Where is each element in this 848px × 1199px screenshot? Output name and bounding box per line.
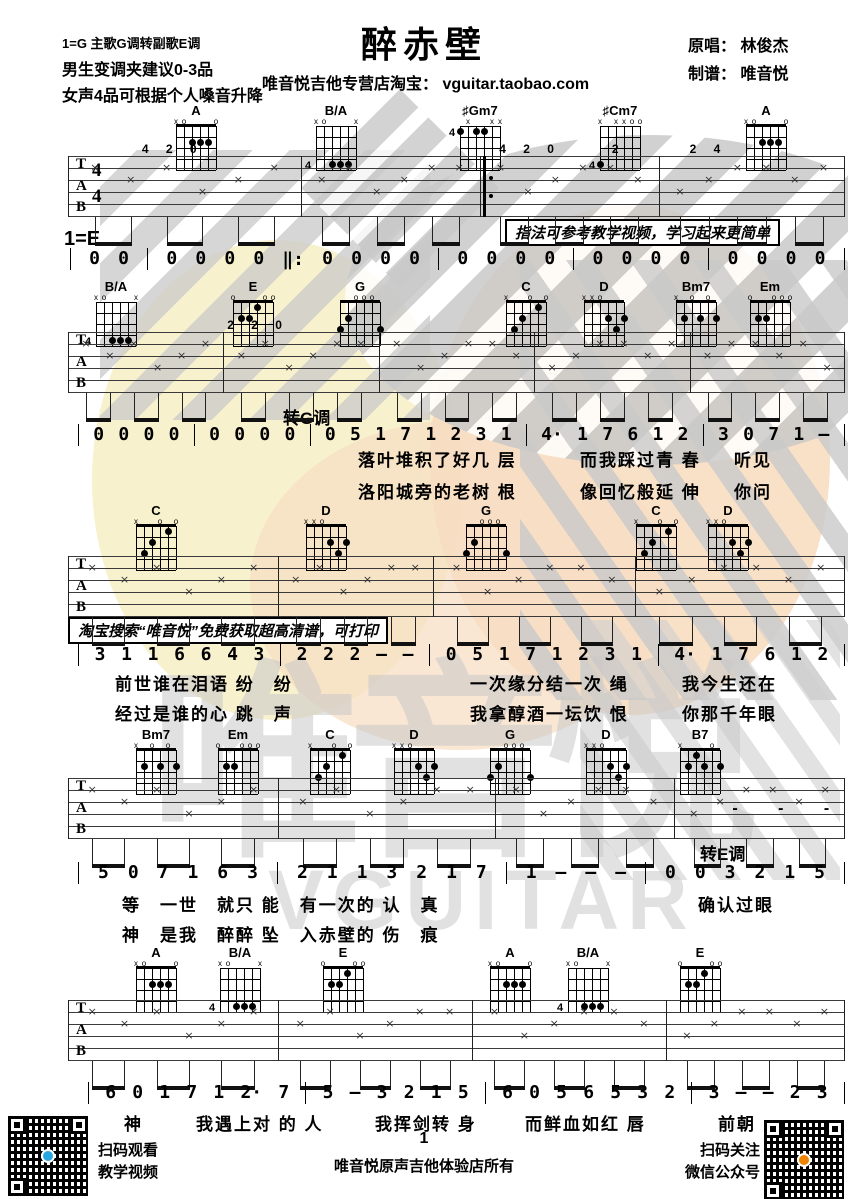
strum-x-mark: × (90, 161, 99, 174)
jianpu-note: 1 (446, 862, 457, 884)
chord-fret-line (136, 772, 176, 773)
jianpu-note: 6 (627, 424, 638, 446)
staff-line (68, 802, 845, 803)
jianpu-row-1: 000000‖:0000000000000000 (70, 248, 845, 270)
staff-letter-T: T (76, 1000, 86, 1017)
jianpu-note: 1 (652, 424, 663, 446)
bar-line (480, 156, 481, 217)
jianpu-note: 1 (357, 862, 368, 884)
jianpu-note: 0 (515, 248, 526, 270)
chord-fret-line (568, 968, 608, 969)
note-stem (349, 217, 350, 244)
strum-x-mark: × (464, 337, 473, 350)
strum-x-mark: × (819, 161, 828, 174)
note-stem (492, 393, 493, 420)
string-marker-o: o (322, 118, 326, 126)
chord-fret-line (136, 548, 176, 549)
jianpu-note: 1 (793, 424, 804, 446)
jianpu-note: 5 (98, 862, 109, 884)
jianpu-note: 5 (458, 1082, 469, 1104)
jianpu-note: 7 (525, 644, 536, 666)
note-stem (612, 617, 613, 644)
lyric-segment: 我拿醇酒一坛饮 恨 (470, 700, 629, 725)
jianpu-barline (78, 862, 79, 884)
jianpu-note: 0 (169, 424, 180, 446)
jianpu-note: 1 (631, 644, 642, 666)
chord-finger-dot (223, 763, 230, 770)
bar-line (379, 332, 380, 393)
chord-finger-dot (471, 539, 478, 546)
string-marker-x: x (566, 960, 570, 968)
jianpu-note: 0 (786, 248, 797, 270)
chord-fret-line (680, 968, 720, 969)
pickup-numbers: 4 2 0 (499, 142, 561, 156)
chord-fret-line (136, 761, 176, 762)
bar-line (223, 332, 224, 393)
chord-finger-dot (519, 315, 526, 322)
chord-finger-dot (344, 970, 351, 977)
jianpu-barline (310, 424, 311, 446)
bar-line (68, 1000, 69, 1061)
jianpu-note: 0 (815, 248, 826, 270)
chord-name: G (332, 280, 388, 294)
jianpu-barline (88, 1082, 89, 1104)
jianpu-row-3: 3116643222––051712314·17612 (78, 644, 845, 666)
chord-finger-dot (693, 981, 700, 988)
staff-line (68, 1060, 845, 1061)
jianpu-note: 0 (380, 248, 391, 270)
jianpu-note: 0 (457, 248, 468, 270)
chord-fret-line (708, 548, 748, 549)
strum-x-mark: × (488, 337, 497, 350)
lyric-segment: 你那千年眼 (682, 700, 777, 725)
strum-x-mark: × (455, 161, 464, 174)
chord-finger-dot (141, 763, 148, 770)
lyric-segment: 而我踩过青 春 (580, 446, 701, 471)
strum-x-mark: × (689, 807, 698, 820)
chord-fret-line (310, 761, 350, 762)
strum-x-mark: × (432, 783, 441, 796)
strum-x-mark: × (427, 161, 436, 174)
strum-x-mark: × (152, 561, 161, 574)
jianpu-repeat: ‖: (282, 249, 304, 270)
chord-fret-line (394, 761, 434, 762)
jianpu-note: 5 (323, 1082, 334, 1104)
staff-letter-B: B (76, 375, 86, 392)
chord-name: C (628, 504, 684, 518)
jianpu-note: 2 (404, 1082, 415, 1104)
chord-name: Em (210, 728, 266, 742)
strum-x-mark: × (578, 161, 587, 174)
chord-finger-dot (165, 981, 172, 988)
chord-fret-line (394, 750, 434, 751)
strum-x-mark: × (440, 349, 449, 362)
staff-letter-A: A (76, 354, 87, 371)
chord-name: D (700, 504, 756, 518)
jianpu-note: 0 (592, 248, 603, 270)
chord-name: ♯Gm7 (452, 104, 508, 118)
chord-fret-number: 4 (449, 127, 455, 139)
note-stem (610, 217, 611, 244)
jianpu-note: 1 (712, 644, 723, 666)
bar-line (844, 156, 845, 217)
beam (86, 418, 111, 422)
strum-x-mark: × (298, 795, 307, 808)
pickup-numbers: 2 2 0 (227, 318, 289, 332)
note-stem (755, 393, 756, 420)
strum-x-mark: × (710, 1017, 719, 1030)
beam (182, 418, 207, 422)
chord-fret-line (676, 302, 716, 303)
chord-fret-line (600, 126, 640, 127)
jianpu-note: 1 (159, 1082, 170, 1104)
capo-advice-male: 男生变调夹建议0-3品 (62, 56, 213, 80)
bar-line (666, 1000, 667, 1061)
chord-fret-line (176, 137, 216, 138)
jianpu-note: 3 (386, 862, 397, 884)
note-stem (528, 217, 529, 244)
jianpu-barline (708, 248, 709, 270)
jianpu-barline (438, 248, 439, 270)
chord-finger-dot (205, 139, 212, 146)
jianpu-note: 5 (556, 1082, 567, 1104)
strum-x-mark: × (355, 1029, 364, 1042)
strum-x-mark: × (365, 807, 374, 820)
chord-name: Em (742, 280, 798, 294)
strum-x-mark: × (234, 173, 243, 186)
strum-x-mark: × (792, 1017, 801, 1030)
beam (648, 418, 673, 422)
chord-finger-dot (339, 752, 346, 759)
note-stem (320, 617, 321, 644)
note-stem (124, 617, 125, 644)
strum-x-mark: × (621, 783, 630, 796)
strum-x-mark: × (703, 349, 712, 362)
strum-x-mark: × (496, 161, 505, 174)
jianpu-note: 0 (621, 248, 632, 270)
jianpu-barline (78, 424, 79, 446)
chord-fret-line (490, 990, 530, 991)
chord-fret-line (680, 772, 720, 773)
lyric-segment: 神 是我 醉醉 坠 入赤壁的 伤 痕 (122, 921, 439, 946)
chord-finger-dot (697, 315, 704, 322)
original-singer: 原唱： 林俊杰 (688, 32, 788, 56)
strum-x-mark: × (88, 1005, 97, 1018)
strum-x-mark: × (511, 783, 520, 796)
jianpu-note: 0 (253, 248, 264, 270)
jianpu-note: 2 (450, 424, 461, 446)
string-marker-x: x (598, 118, 602, 126)
note-stem (322, 217, 323, 244)
chord-fret-line (394, 772, 434, 773)
strum-x-mark: × (655, 585, 664, 598)
jianpu-note: 0 (446, 644, 457, 666)
jianpu-note: 0 (144, 424, 155, 446)
chord-fret-line (600, 137, 640, 138)
chord-finger-dot (607, 763, 614, 770)
note-stem (131, 217, 132, 244)
chord-fret-line (746, 148, 786, 149)
chord-finger-dot (415, 763, 422, 770)
strum-x-mark: × (675, 185, 684, 198)
chord-fret-line (316, 148, 356, 149)
repeat-bar (483, 156, 486, 217)
chord-name: Bm7 (128, 728, 184, 742)
beam (492, 418, 517, 422)
note-stem (445, 393, 446, 420)
chord-fret-line (506, 313, 546, 314)
note-stem (421, 393, 422, 420)
chord-finger-dot (519, 981, 526, 988)
note-stem (95, 217, 96, 244)
chord-finger-dot (327, 539, 334, 546)
jianpu-note: 0 (665, 862, 676, 884)
chord-name: B7 (672, 728, 728, 742)
jianpu-note: 4· (674, 644, 696, 666)
sheet-music-page: 唯音悦 VGUITAR 醉赤壁 1=G 主歌G调转副歌E调 男生变调夹建议0-3… (0, 0, 848, 1199)
beam (337, 418, 362, 422)
chord-fret-line (750, 324, 790, 325)
jianpu-note: 7 (158, 862, 169, 884)
jianpu-note: 1 (552, 644, 563, 666)
jianpu-note: 0 (544, 248, 555, 270)
chord-fret-line (676, 324, 716, 325)
chord-fret-line (233, 313, 273, 314)
chord-fret-line (218, 761, 258, 762)
note-stem (367, 617, 368, 644)
strum-x-mark: × (120, 573, 129, 586)
beam (238, 242, 275, 246)
strum-x-mark: × (345, 161, 354, 174)
chord-fret-line (316, 137, 356, 138)
jianpu-note: 3 (709, 1082, 720, 1104)
strum-x-mark: × (816, 561, 825, 574)
staff-letter-A: A (76, 178, 87, 195)
arranger: 制谱： 唯音悦 (688, 60, 788, 84)
chord-fret-line (340, 324, 380, 325)
jianpu-note: 0 (224, 248, 235, 270)
strum-x-mark: × (152, 1005, 161, 1018)
note-stem (692, 617, 693, 644)
jianpu-barline (844, 862, 845, 884)
note-stem (296, 617, 297, 644)
staff-line (68, 368, 845, 369)
jianpu-barline (506, 862, 507, 884)
note-stem (344, 617, 345, 644)
chord-fret-line (96, 324, 136, 325)
staff-letter-B: B (76, 1043, 86, 1060)
note-stem (289, 393, 290, 420)
jianpu-note: 2 (578, 644, 589, 666)
jianpu-note: 6 (201, 644, 212, 666)
note-stem (254, 617, 255, 644)
chord-finger-dot (701, 763, 708, 770)
beam (555, 242, 583, 246)
note-stem (167, 217, 168, 244)
strum-x-mark: × (249, 783, 258, 796)
jianpu-note: 1 (791, 644, 802, 666)
note-stem (488, 617, 489, 644)
note-stem (724, 617, 725, 644)
note-stem (823, 217, 824, 244)
strum-x-mark: × (237, 349, 246, 362)
strum-x-mark: × (445, 1005, 454, 1018)
chord-fret-line (96, 302, 136, 303)
chord-finger-dot (763, 315, 770, 322)
note-stem (189, 617, 190, 644)
beam (134, 418, 159, 422)
chord-fret-line (306, 526, 346, 527)
chord-finger-dot (713, 315, 720, 322)
staff-letter-T: T (76, 778, 86, 795)
note-stem (803, 393, 804, 420)
jianpu-note: 7 (186, 1082, 197, 1104)
chord-finger-dot (535, 304, 542, 311)
chord-fret-line (460, 126, 500, 127)
strum-x-mark: × (704, 173, 713, 186)
beam (600, 418, 625, 422)
bar-line (68, 332, 69, 393)
chord-fret-line (636, 537, 676, 538)
chord-finger-dot (173, 763, 180, 770)
jianpu-note: 0 (728, 248, 739, 270)
bar-line (278, 556, 279, 617)
qr-left-label: 扫码观看 教学视频 (98, 1140, 158, 1184)
jianpu-note: 1 (148, 644, 159, 666)
chord-fret-line (306, 537, 346, 538)
staff-line (68, 156, 845, 157)
staff-letter-B: B (76, 599, 86, 616)
chord-fret-line (636, 526, 676, 527)
jianpu-note: 0 (118, 424, 129, 446)
strum-x-mark: × (261, 337, 270, 350)
strum-x-mark: × (483, 585, 492, 598)
bar-line (844, 556, 845, 617)
strum-x-mark: × (332, 783, 341, 796)
jianpu-barline (277, 862, 278, 884)
note-stem (457, 617, 458, 644)
strum-x-mark: × (88, 783, 97, 796)
beam (432, 242, 460, 246)
jianpu-note: – (556, 862, 567, 884)
note-stem (672, 393, 673, 420)
bar-line (278, 778, 279, 839)
chord-name: E (225, 280, 281, 294)
jianpu-note: 6 (502, 1082, 513, 1104)
jianpu-row-2: 00000000051712314·176123071– (78, 424, 845, 446)
note-stem (731, 393, 732, 420)
strum-x-mark: × (296, 1017, 305, 1030)
jianpu-note: 1 (187, 862, 198, 884)
strum-x-mark: × (184, 807, 193, 820)
strum-x-mark: × (512, 349, 521, 362)
strum-x-mark: × (633, 173, 642, 186)
jianpu-note: 2 (755, 862, 766, 884)
jianpu-note: 7 (738, 644, 749, 666)
jianpu-note: 3 (377, 1082, 388, 1104)
jianpu-note: 2 (416, 862, 427, 884)
chord-name: B/A (88, 280, 144, 294)
jianpu-note: 3 (247, 862, 258, 884)
staff-line (68, 216, 845, 217)
chord-fret-line (136, 537, 176, 538)
chord-finger-dot (717, 763, 724, 770)
chord-string-markers: xxxoo (592, 118, 648, 126)
note-stem (756, 617, 757, 644)
string-marker-x: x (94, 294, 98, 302)
note-stem (638, 217, 639, 244)
note-stem (576, 393, 577, 420)
note-stem (182, 393, 183, 420)
strum-x-mark: × (639, 1017, 648, 1030)
chord-fret-line (340, 302, 380, 303)
chord-fret-line (466, 537, 506, 538)
jianpu-note: 1 (327, 862, 338, 884)
chord-fret-line (220, 990, 260, 991)
jianpu-barline (70, 248, 71, 270)
jianpu-note: 0 (132, 1082, 143, 1104)
jianpu-note: 2 (790, 1082, 801, 1104)
strum-x-mark: × (514, 573, 523, 586)
lyric-segment: 我今生还在 (682, 670, 777, 695)
chord-string-markers: xox (212, 960, 268, 968)
staff-line (68, 826, 845, 827)
jianpu-note: 7 (768, 424, 779, 446)
strum-x-mark: × (387, 561, 396, 574)
chord-finger-dot (165, 528, 172, 535)
jianpu-note: 2 (678, 424, 689, 446)
jianpu-note: 1 (526, 862, 537, 884)
jianpu-note: – (403, 644, 414, 666)
tab-staff-3: TAB×××××××××××××××××××××××× (68, 556, 845, 656)
lyric-segment: 经过是谁的心 跳 声 (115, 700, 293, 725)
jianpu-note: 1 (121, 644, 132, 666)
chord-finger-dot (511, 981, 518, 988)
strum-x-mark: × (177, 349, 186, 362)
jianpu-note: 0 (118, 248, 129, 270)
note-stem (432, 217, 433, 244)
jianpu-note: 1 (375, 424, 386, 446)
lyric-segment: 一次缘分结一次 绳 (470, 670, 629, 695)
chord-fret-line (750, 302, 790, 303)
jianpu-note: 1 (784, 862, 795, 884)
jianpu-barline (844, 248, 845, 270)
strum-x-mark: × (385, 1017, 394, 1030)
strum-x-mark: × (821, 783, 830, 796)
jianpu-note: 5 (610, 1082, 621, 1104)
chord-fret-line (323, 979, 363, 980)
strum-x-mark: × (105, 349, 114, 362)
staff-line (68, 332, 845, 333)
beam (397, 418, 422, 422)
jianpu-barline (573, 248, 574, 270)
jianpu-note: – (736, 1082, 747, 1104)
chord-finger-dot (481, 128, 488, 135)
chord-fret-line (136, 990, 176, 991)
tab-staff-1: TAB444 2 04 2 022 4×××××××××××××××××××××… (68, 156, 845, 256)
bar-line (635, 556, 636, 617)
strum-x-mark: × (727, 337, 736, 350)
chord-fret-line (676, 313, 716, 314)
store-line: 唯音悦吉他专营店淘宝： vguitar.taobao.com (262, 70, 589, 94)
chord-finger-dot (685, 763, 692, 770)
jianpu-note: 2 (297, 644, 308, 666)
strum-x-mark: × (752, 561, 761, 574)
staff-line (68, 1024, 845, 1025)
chord-name: G (458, 504, 514, 518)
jianpu-note: 0 (166, 248, 177, 270)
chord-string-markers: xxx (452, 118, 508, 126)
